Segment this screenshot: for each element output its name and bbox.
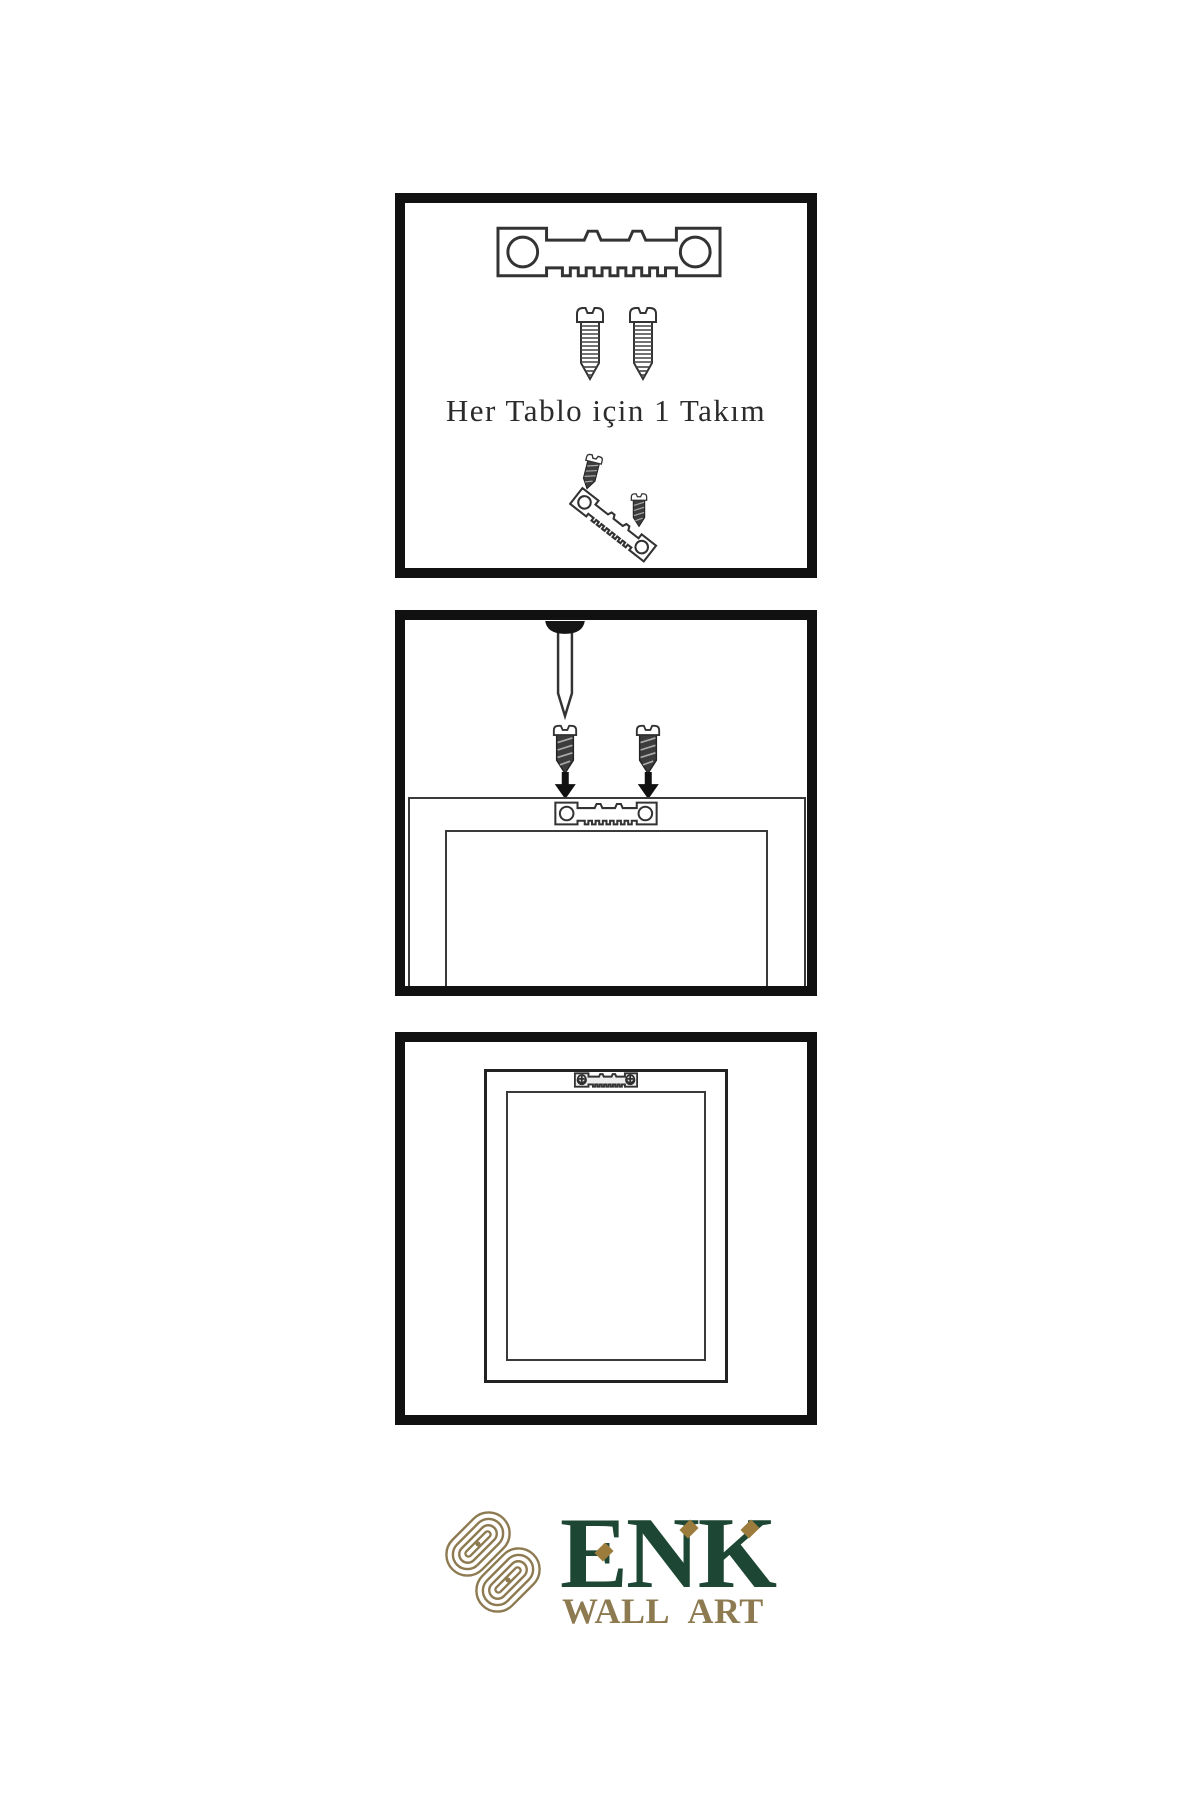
step-3-panel [395, 1032, 817, 1425]
arrow-down-icon [637, 772, 660, 800]
brand-name: ENK [560, 1503, 780, 1605]
step-1-panel: Her Tablo için 1 Takım [395, 193, 817, 578]
interlocked-knot-icon [438, 1496, 548, 1630]
dark-screw-icon [634, 723, 662, 777]
screw-icon [572, 305, 608, 385]
dark-screw-icon [551, 723, 579, 777]
small-screw-icon [629, 492, 649, 529]
arrow-down-icon [554, 772, 577, 800]
wall-nail-icon [543, 620, 587, 721]
frame-back-inner-edge [445, 830, 768, 992]
sawtooth-hanger-icon [495, 225, 723, 279]
step-2-panel [395, 610, 817, 996]
step-1-caption: Her Tablo için 1 Takım [405, 393, 807, 429]
sawtooth-hanger-icon [554, 801, 658, 826]
picture-frame-inner-edge [506, 1091, 706, 1361]
small-screw-icon [577, 451, 606, 494]
brand-tagline: WALL ART [562, 1593, 782, 1629]
mounted-sawtooth-hanger-icon [574, 1071, 638, 1089]
screw-icon [625, 305, 661, 385]
